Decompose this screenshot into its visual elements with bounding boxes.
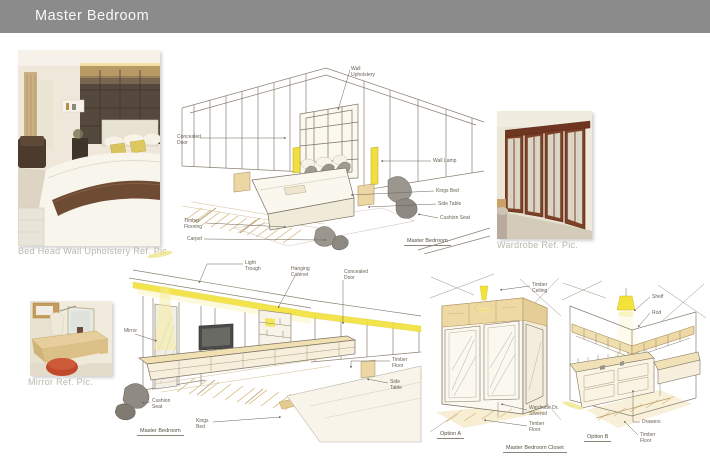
wardrobe-box [442, 298, 547, 414]
cushion-seat-sketch-2 [115, 383, 149, 420]
page-title: Master Bedroom [35, 0, 149, 33]
label-cushion-seat-2: Cushion Seat [152, 398, 174, 410]
wardrobe-caption: Wardrobe Ref. Pic. [497, 240, 578, 250]
label-timber-floor-2: Timber Floor [392, 357, 412, 369]
closet-sketch-option-b [560, 278, 708, 450]
label-timber-ceiling: Timber Ceiling [532, 282, 554, 294]
label-concealed-door-2: Concealed Door [344, 269, 368, 281]
mirror-photo-art [30, 301, 112, 376]
label-side-table-1: Side Table [438, 201, 461, 207]
bedroom-sketch-1 [168, 58, 496, 254]
label-shelf: Shelf [652, 294, 663, 300]
wardrobe-photo [497, 111, 592, 239]
pendant-light-sketch [617, 288, 635, 317]
mirror-photo [30, 301, 112, 376]
sketch1-caption: Master Bedroom [404, 238, 451, 246]
perspective-guides-b [562, 281, 706, 322]
header-bar: Master Bedroom [0, 0, 710, 33]
label-cushion-seat-1: Cushion Seat [440, 215, 470, 221]
label-wall-upholstery: Wall Upholstery [351, 66, 381, 78]
bed-head-photo [18, 50, 160, 246]
bed-head-caption: Bed Head Wall Upholstery Ref. Pic. [18, 246, 170, 256]
wardrobe-photo-art [497, 111, 592, 239]
label-rod: Rod [652, 310, 661, 316]
sketch2-caption: Master Bedroom [137, 428, 184, 436]
label-hanging-cabinet: Hanging Cabinet [291, 266, 313, 278]
label-kings-bed-1: Kings Bed [436, 188, 459, 194]
label-drawers: Drawers [642, 419, 661, 425]
mirror-caption: Mirror Ref. Pic. [28, 377, 93, 387]
label-wall-lamp: Wall Lamp [433, 158, 456, 164]
option-b-caption: Option B [584, 434, 611, 442]
label-wardrobe-door: Wardrobe Dr. Silvered [529, 405, 563, 417]
label-light-trough: Light Trough [245, 260, 267, 272]
label-carpet: Carpet [187, 236, 202, 242]
label-side-table-2: Side Table [390, 379, 408, 391]
closet-caption: Master Bedroom Closet [503, 445, 567, 453]
label-concealed-door-1: Concealed Door [177, 134, 199, 146]
bed-sketch-2 [279, 360, 421, 442]
presentation-page: Master Bedroom [0, 0, 710, 470]
label-mirror: Mirror [124, 328, 137, 334]
label-timber-floor-4: Timber Floor [640, 432, 660, 444]
bed-head-photo-art [18, 50, 160, 246]
bedroom-sketch-2 [115, 256, 425, 446]
option-a-caption: Option A [437, 431, 464, 439]
label-timber-flooring: Timber Flooring [184, 218, 204, 230]
label-timber-floor-3: Timber Floor [529, 421, 549, 433]
bench-sketch [654, 352, 700, 396]
label-kings-bed-2: Kings Bed [196, 418, 216, 430]
